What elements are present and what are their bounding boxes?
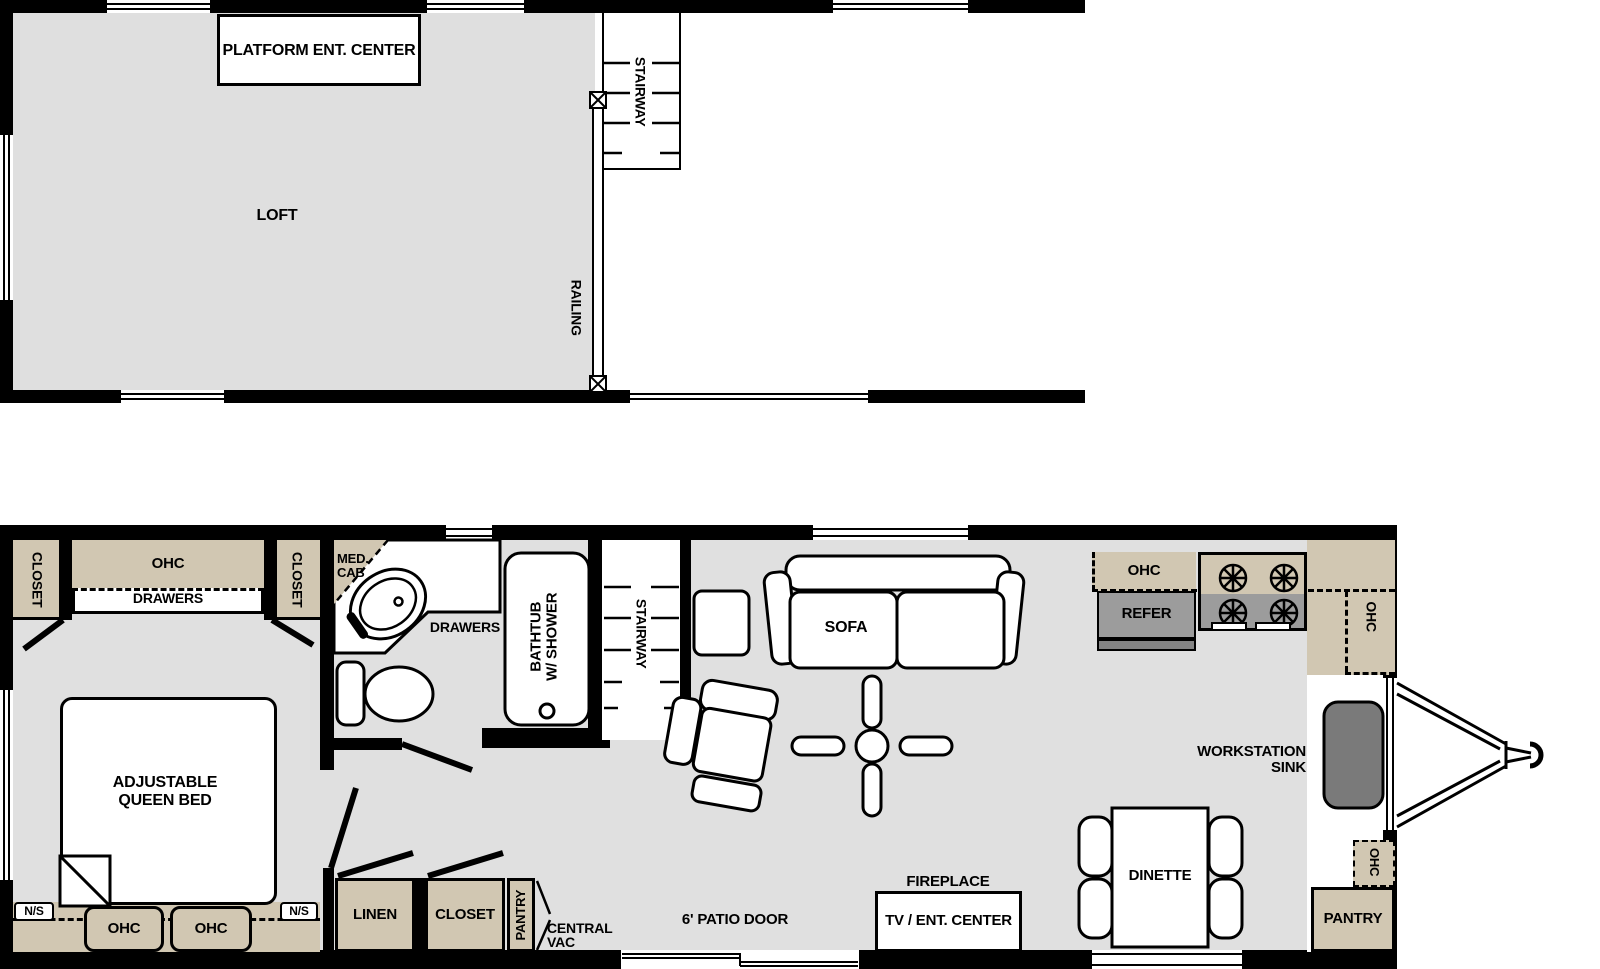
- bedroom-ohc-top-label: OHC: [72, 556, 264, 573]
- main-stairway-label: STAIRWAY: [633, 564, 648, 704]
- nightstand-right-label: N/S: [280, 905, 318, 918]
- kitchen-pantry-label: PANTRY: [1311, 911, 1395, 928]
- bed-fold-corner: [60, 856, 110, 906]
- toilet: [337, 662, 433, 725]
- nightstand-left-label: N/S: [14, 905, 54, 918]
- stove-burners: [1212, 565, 1297, 630]
- floor-plan-canvas: PLATFORM ENT. CENTER LOFT STAIRWAY RAILI…: [0, 0, 1600, 969]
- trailer-hitch: [1397, 683, 1541, 827]
- bedroom-closet-right-label: CLOSET: [289, 510, 304, 650]
- railing-end-markers: [590, 92, 606, 392]
- bedroom-ohc-bottom-left-label: OHC: [84, 921, 164, 938]
- central-vac-label: CENTRAL VAC: [547, 921, 627, 949]
- bathtub-line1: BATHTUB: [527, 602, 544, 672]
- loft-label: LOFT: [227, 207, 327, 225]
- fireplace-label: FIREPLACE: [868, 874, 1028, 891]
- bath-drawers-label: DRAWERS: [405, 620, 525, 635]
- bedroom-drawers-label: DRAWERS: [72, 591, 264, 606]
- central-vac-line2: VAC: [547, 934, 575, 950]
- door-swings: [24, 620, 503, 876]
- armchair: [657, 674, 779, 812]
- dinette-label: DINETTE: [1112, 868, 1208, 885]
- fixtures-overlay: [0, 0, 1600, 969]
- bed-label: ADJUSTABLE QUEEN BED: [65, 774, 265, 809]
- patio-door-label: 6' PATIO DOOR: [655, 912, 815, 929]
- ceiling-fan: [792, 676, 952, 816]
- end-table: [694, 591, 749, 655]
- bedroom-ohc-bottom-right-label: OHC: [170, 921, 252, 938]
- kitchen-ohc-right-label: OHC: [1363, 547, 1378, 687]
- railing-label: RAILING: [568, 238, 583, 378]
- sofa: [763, 556, 1024, 668]
- workstation-sink-line1: WORKSTATION: [1197, 743, 1306, 760]
- hall-pantry-label: PANTRY: [514, 845, 528, 969]
- sofa-label: SOFA: [796, 619, 896, 637]
- bed-label-line2: QUEEN BED: [118, 792, 211, 809]
- bathtub-line2: W/ SHOWER: [543, 593, 560, 681]
- bathtub-label: BATHTUB W/ SHOWER: [528, 552, 560, 722]
- bedroom-closet-left-label: CLOSET: [29, 510, 44, 650]
- workstation-sink-line2: SINK: [1271, 759, 1306, 776]
- linen-label: LINEN: [335, 907, 415, 924]
- patio-door-panels: [622, 953, 858, 966]
- med-cab-label: MED. CAB: [337, 552, 397, 579]
- workstation-sink-label: WORKSTATION SINK: [1126, 744, 1306, 776]
- med-cab-line2: CAB: [337, 565, 365, 580]
- kitchen-ohc-top-label: OHC: [1092, 563, 1196, 580]
- platform-ent-center-label: PLATFORM ENT. CENTER: [217, 42, 421, 60]
- refer-label: REFER: [1097, 606, 1196, 623]
- hall-closet-label: CLOSET: [425, 907, 505, 924]
- bed-label-line1: ADJUSTABLE: [113, 774, 217, 791]
- tv-ent-center-label: TV / ENT. CENTER: [875, 913, 1022, 930]
- loft-stairway-label: STAIRWAY: [632, 22, 647, 162]
